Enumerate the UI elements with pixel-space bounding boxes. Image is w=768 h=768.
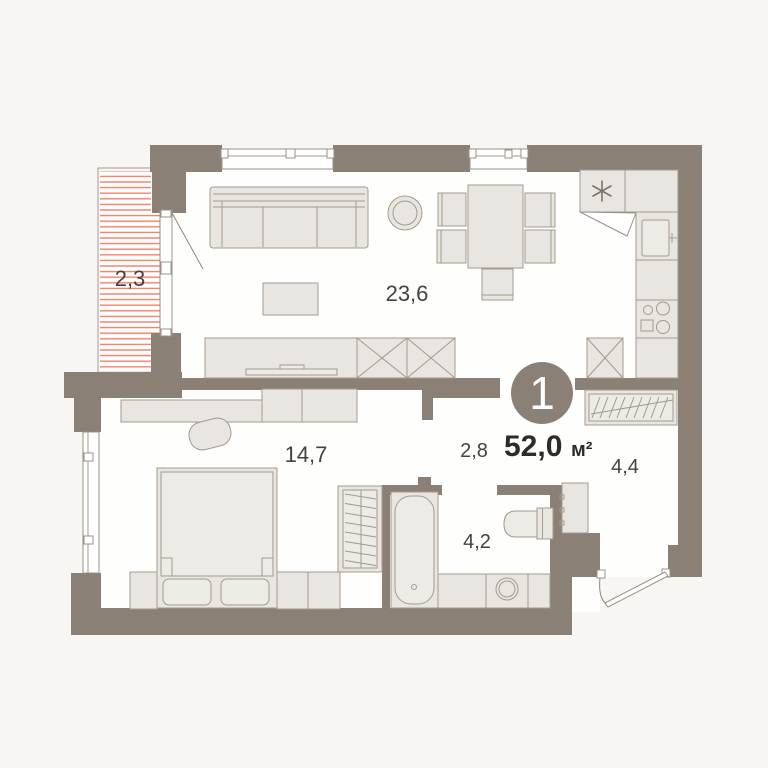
corridor-wardrobe xyxy=(585,390,677,425)
wall-segment xyxy=(382,485,390,612)
pillow xyxy=(221,579,269,605)
fridge-icon xyxy=(587,338,623,378)
wall-segment xyxy=(150,145,222,172)
nightstand xyxy=(130,572,157,609)
bedside-cabinet xyxy=(277,572,340,609)
wall-segment xyxy=(333,145,470,172)
coffee-table xyxy=(263,283,318,315)
area-label-corridor: 4,4 xyxy=(611,456,639,478)
bathtub xyxy=(391,492,438,608)
sink xyxy=(642,220,669,256)
wall-segment xyxy=(64,372,182,398)
tv-console xyxy=(205,338,357,378)
area-label-bedroom: 14,7 xyxy=(285,442,328,467)
area-label-balcony: 2,3 xyxy=(115,266,146,291)
area-label-living-kitchen: 23,6 xyxy=(386,281,429,306)
floor-plan-canvas: 2,3 23,6 14,7 2,8 4,2 4,4 1 52,0 м² xyxy=(0,0,768,768)
kitchen-counter xyxy=(636,260,678,300)
floor-plan: 2,3 23,6 14,7 2,8 4,2 4,4 1 52,0 м² xyxy=(0,0,768,768)
dining-table xyxy=(468,185,523,268)
kitchen-cabinet xyxy=(636,338,678,378)
sofa xyxy=(210,187,368,248)
window-living-right xyxy=(469,149,528,169)
toilet xyxy=(504,508,553,539)
cabinet xyxy=(262,389,302,422)
tv-icon xyxy=(246,369,337,375)
window-living-left xyxy=(221,149,334,169)
total-area-unit: м² xyxy=(571,439,593,461)
total-area-value: 52,0 xyxy=(504,430,562,463)
wall-segment xyxy=(527,145,702,172)
washer-counter xyxy=(438,574,550,608)
wall-segment xyxy=(422,378,433,420)
wall-segment xyxy=(418,477,431,486)
wall-segment xyxy=(575,378,678,390)
round-table xyxy=(388,196,422,230)
rooms-count-number: 1 xyxy=(529,367,555,419)
cabinet xyxy=(302,389,357,422)
wall-segment xyxy=(152,172,186,213)
window-bedroom xyxy=(83,432,99,573)
wall-segment xyxy=(74,398,101,432)
wall-segment xyxy=(182,378,422,390)
desk xyxy=(121,400,262,422)
pillow xyxy=(163,579,211,605)
outside-entry xyxy=(600,577,702,640)
bed xyxy=(157,468,277,608)
wall-segment xyxy=(678,145,702,577)
wall-segment xyxy=(668,545,702,577)
wall-segment xyxy=(550,533,600,577)
living-wardrobe-icon xyxy=(357,338,455,378)
wall-segment xyxy=(85,608,572,635)
wall-segment xyxy=(422,378,500,398)
area-label-bathroom: 4,2 xyxy=(463,531,491,553)
wall-segment xyxy=(151,333,181,378)
area-label-hall: 2,8 xyxy=(460,440,488,462)
wall-segment xyxy=(550,577,572,620)
kitchen-cabinet xyxy=(625,170,678,212)
bedroom-closet xyxy=(338,486,382,572)
bathroom-shelf xyxy=(560,483,588,533)
